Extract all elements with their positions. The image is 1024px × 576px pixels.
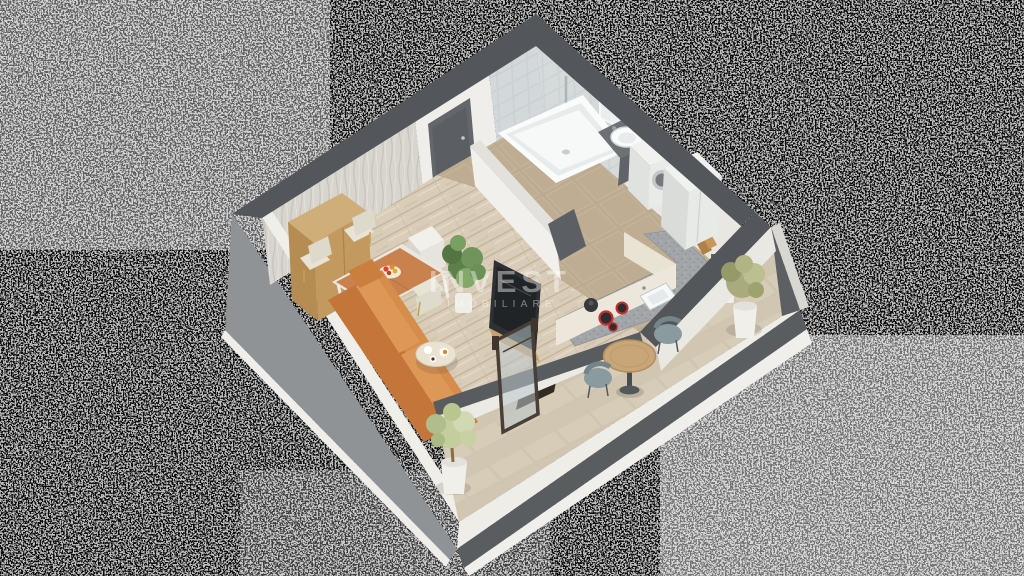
croissant bbox=[443, 350, 447, 354]
bathtub-drain bbox=[562, 150, 570, 155]
door-frame-post bbox=[492, 336, 499, 350]
coffee-table bbox=[416, 342, 458, 375]
coffee-cup bbox=[431, 357, 434, 360]
screenshot-root: INVEST IMOBILIARE bbox=[0, 0, 1024, 576]
watermark: INVEST IMOBILIARE bbox=[429, 264, 571, 310]
door-handle bbox=[461, 136, 465, 140]
kettle bbox=[584, 298, 598, 312]
floor-plan-render: INVEST IMOBILIARE bbox=[0, 0, 1024, 576]
watermark-title: INVEST bbox=[429, 264, 571, 299]
door-frame-post bbox=[531, 318, 538, 332]
faucet bbox=[612, 126, 616, 130]
watermark-subtitle: IMOBILIARE bbox=[447, 298, 557, 310]
